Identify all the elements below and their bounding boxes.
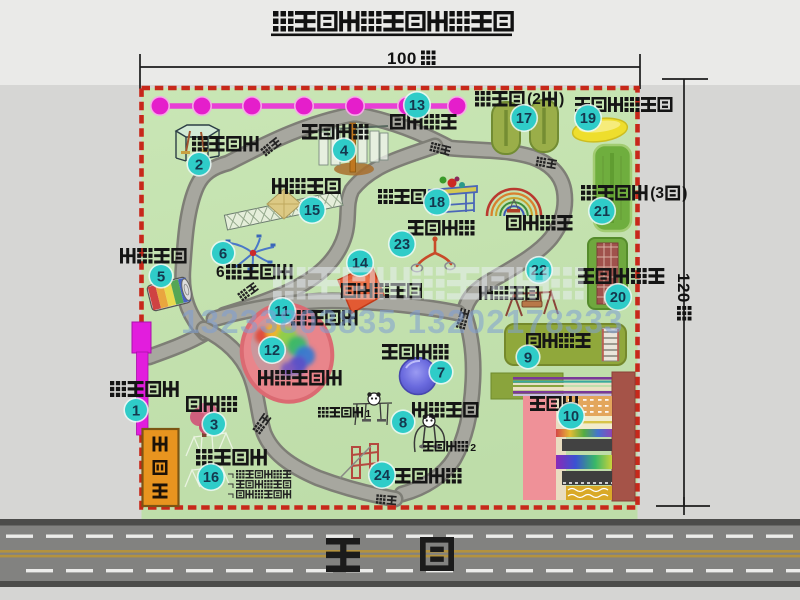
svg-text:): ) (559, 91, 564, 108)
svg-text:19: 19 (580, 111, 596, 127)
svg-text:): ) (682, 185, 687, 202)
svg-text:1: 1 (365, 408, 371, 420)
svg-text:12: 12 (264, 343, 280, 359)
svg-text:13: 13 (409, 98, 425, 114)
svg-text:9: 9 (524, 349, 532, 366)
svg-text:21: 21 (594, 204, 610, 220)
svg-text:7: 7 (437, 364, 445, 381)
svg-text:17: 17 (516, 111, 532, 127)
svg-text:10: 10 (563, 409, 579, 425)
svg-text:100: 100 (387, 49, 417, 68)
svg-text:24: 24 (374, 468, 390, 484)
svg-text:(3: (3 (650, 185, 664, 202)
svg-text:23: 23 (394, 237, 410, 253)
svg-text:3: 3 (210, 416, 218, 433)
svg-text:16: 16 (203, 470, 219, 486)
svg-text:13233803835 13202178333: 13233803835 13202178333 (181, 303, 624, 340)
svg-text:15: 15 (304, 203, 320, 219)
svg-text:6: 6 (216, 264, 225, 281)
svg-text:8: 8 (399, 414, 407, 431)
svg-text:2: 2 (470, 442, 476, 454)
svg-text:6: 6 (219, 245, 227, 262)
svg-text:2: 2 (195, 156, 203, 173)
svg-text:1: 1 (132, 402, 140, 419)
svg-text:4: 4 (340, 142, 349, 159)
svg-text:18: 18 (429, 195, 445, 211)
svg-text:5: 5 (157, 268, 165, 285)
svg-text:120: 120 (674, 273, 693, 303)
